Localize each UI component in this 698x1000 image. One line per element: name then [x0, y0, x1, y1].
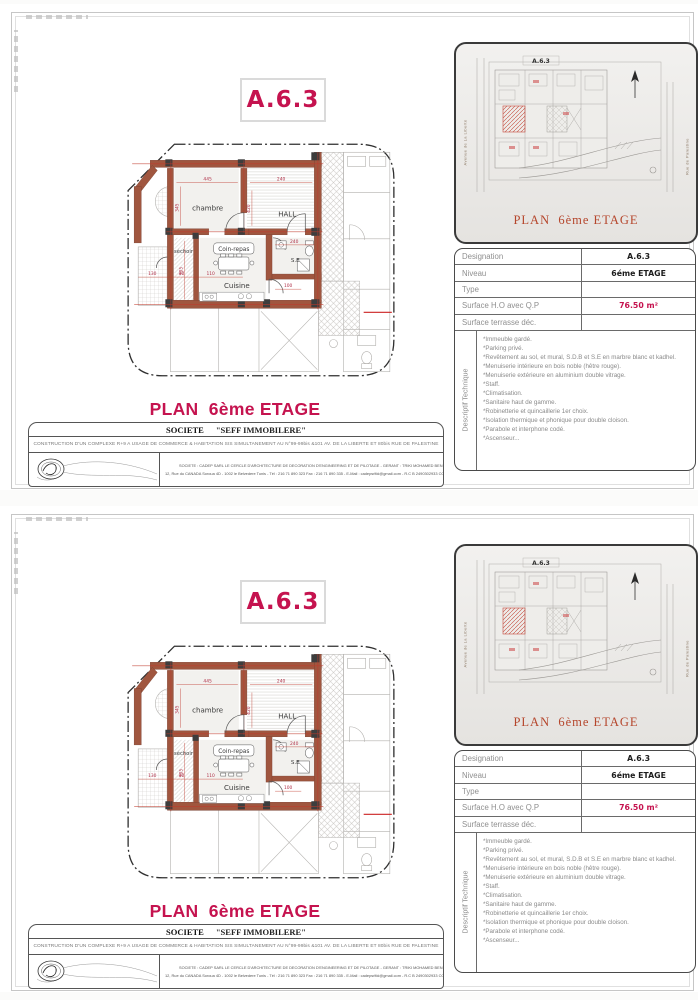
inset-caption: PLAN 6ème ETAGE [456, 715, 696, 730]
table-row: Type [455, 784, 695, 800]
dim-chambre-height: 345 [174, 203, 180, 212]
row-value [582, 817, 695, 832]
border-tick-marks-horizontal [26, 517, 88, 521]
room-label-coin-repas: Coin-repas [218, 247, 249, 253]
project-description: CONSTRUCTION D'UN COMPLEXE R+9 A USAGE D… [29, 939, 443, 955]
dim-hall-height: 420 [246, 706, 252, 715]
border-tick-marks-horizontal [26, 15, 88, 19]
stamp-logo-drawing [29, 955, 159, 988]
row-label: Surface H.O avec Q.P [455, 298, 582, 313]
descriptif-items: *Immeuble gardé. *Parking privé. *Revête… [477, 833, 695, 972]
row-value-surface: 76.50 m² [582, 800, 695, 815]
descriptif-item: *Sanitaire haut de gamme. [483, 398, 692, 407]
building-mass [495, 70, 607, 168]
table-row: Surface terrasse déc. [455, 817, 695, 833]
room-label-chambre: chambre [192, 204, 223, 213]
table-row: Surface H.O avec Q.P 76.50 m² [455, 800, 695, 816]
inset-unit-code: A.6.3 [532, 560, 550, 567]
societe-value: "SEFF IMMOBILERE" [216, 425, 306, 435]
dim-sechoir-c: 110 [206, 773, 215, 779]
descriptif-technique: Descriptif Technique *Immeuble gardé. *P… [455, 331, 695, 470]
descriptif-item: *Robinetterie et quincaillerie 1er choix… [483, 407, 692, 416]
dim-chambre-width: 445 [203, 678, 212, 684]
inset-unit-code: A.6.3 [532, 58, 550, 65]
dim-sechoir-c: 110 [206, 271, 215, 277]
descriptif-item: *Parabole et interphone codé. [483, 425, 692, 434]
descriptif-item: *Immeuble gardé. [483, 335, 692, 344]
toilet [305, 748, 313, 758]
row-value: 6éme ETAGE [582, 767, 695, 782]
row-label: Surface H.O avec Q.P [455, 800, 582, 815]
designation-table: Designation A.6.3 Niveau 6éme ETAGE Type… [454, 750, 696, 973]
descriptif-item: *Immeuble gardé. [483, 837, 692, 846]
unit-code: A.6.3 [247, 87, 320, 113]
highlighted-unit [503, 608, 525, 634]
table-row: Surface terrasse déc. [455, 315, 695, 331]
row-label: Niveau [455, 265, 582, 280]
row-label: Designation [455, 249, 582, 264]
descriptif-item: *Menuiserie intérieure en bois noble (hê… [483, 362, 692, 371]
descriptif-item: *Ascenseur... [483, 434, 692, 443]
cadep-stamp-logo [29, 955, 160, 988]
table-row: Designation A.6.3 [455, 751, 695, 767]
dim-se-width: 240 [290, 741, 299, 747]
descriptif-item: *Menuiserie extérieure en aluminium doub… [483, 371, 692, 380]
shaft-hatch [318, 152, 343, 281]
room-label-coin-repas: Coin-repas [218, 749, 249, 755]
dim-se-b: 100 [284, 283, 293, 289]
street-label-left: Avenue de La Liberté [463, 610, 468, 680]
plan-sheet: A.6.3 [0, 506, 698, 992]
row-label: Surface terrasse déc. [455, 315, 582, 330]
row-value [582, 315, 695, 330]
descriptif-item: *Menuiserie intérieure en bois noble (hê… [483, 864, 692, 873]
site-plan-drawing: A.6.3 [463, 50, 687, 200]
site-plan-card: A.6.3 Avenue de La Liberté Rue de Palest… [454, 42, 698, 244]
room-label-sechoir: séchoir [174, 750, 194, 757]
descriptif-item: *Climatisation. [483, 891, 692, 900]
stair-core-hatch [318, 783, 359, 837]
north-arrow-icon [631, 572, 639, 600]
descriptif-item: *Isolation thermique et phonique pour do… [483, 918, 692, 927]
societe-name-row: SOCIETE "SEFF IMMOBILERE" [29, 423, 443, 437]
table-row: Niveau 6éme ETAGE [455, 265, 695, 281]
room-label-se: S.E [291, 760, 300, 766]
room-label-sechoir: séchoir [174, 248, 194, 255]
plan-sheet: A.6.3 [0, 4, 698, 490]
firm-line-2: 12, Rue du CANADA Soroua 4D - 1002 le Be… [165, 471, 444, 476]
firm-line-1: SOCIETE : CADEP SARL LE CERCLE D'ARCHITE… [165, 965, 444, 970]
room-label-cuisine: Cuisine [224, 281, 250, 290]
inset-caption: PLAN 6ème ETAGE [456, 213, 696, 228]
firm-row: SOCIETE : CADEP SARL LE CERCLE D'ARCHITE… [29, 955, 443, 988]
street-label-left: Avenue de La Liberté [463, 108, 468, 178]
street-label-right: Rue de Palestine [685, 122, 690, 192]
row-label: Niveau [455, 767, 582, 782]
page: A.6.3 [0, 0, 698, 992]
row-label: Surface terrasse déc. [455, 817, 582, 832]
site-plan-drawing: A.6.3 [463, 552, 687, 702]
table-row: Type [455, 282, 695, 298]
building-mass [495, 572, 607, 670]
unit-code-box: A.6.3 [240, 580, 326, 624]
societe-name-row: SOCIETE "SEFF IMMOBILERE" [29, 925, 443, 939]
descriptif-item: *Parabole et interphone codé. [483, 927, 692, 936]
stair-core-hatch [318, 281, 359, 335]
descriptif-item: *Parking privé. [483, 344, 692, 353]
descriptif-side-label-cell: Descriptif Technique [455, 833, 477, 972]
dining-table [219, 759, 249, 772]
firm-row: SOCIETE : CADEP SARL LE CERCLE D'ARCHITE… [29, 453, 443, 486]
row-value [582, 784, 695, 799]
descriptif-item: *Parking privé. [483, 846, 692, 855]
dim-chambre-height: 345 [174, 705, 180, 714]
dim-sechoir-height: 305 [178, 769, 184, 778]
dim-chambre-width: 445 [203, 176, 212, 182]
firm-line-1: SOCIETE : CADEP SARL LE CERCLE D'ARCHITE… [165, 463, 444, 468]
dim-sechoir-height: 305 [178, 267, 184, 276]
floor-plan: 445 240 345 420 130 40 110 305 240 100 c… [110, 630, 414, 900]
project-description: CONSTRUCTION D'UN COMPLEXE R+9 A USAGE D… [29, 437, 443, 453]
highlighted-unit [503, 106, 525, 132]
societe-label: SOCIETE [166, 927, 204, 937]
descriptif-item: *Staff. [483, 380, 692, 389]
firm-info: SOCIETE : CADEP SARL LE CERCLE D'ARCHITE… [160, 453, 444, 486]
north-arrow-icon [631, 70, 639, 98]
dim-hall-width: 240 [277, 678, 286, 684]
site-plan-card: A.6.3 Avenue de La Liberté Rue de Palest… [454, 544, 698, 746]
firm-info: SOCIETE : CADEP SARL LE CERCLE D'ARCHITE… [160, 955, 444, 988]
table-row: Niveau 6éme ETAGE [455, 767, 695, 783]
room-label-cuisine: Cuisine [224, 783, 250, 792]
descriptif-item: *Sanitaire haut de gamme. [483, 900, 692, 909]
row-label: Type [455, 282, 582, 297]
societe-label: SOCIETE [166, 425, 204, 435]
dim-hall-height: 420 [246, 204, 252, 213]
row-value [582, 282, 695, 297]
descriptif-item: *Ascenseur... [483, 936, 692, 945]
descriptif-side-label: Descriptif Technique [462, 369, 469, 432]
stamp-logo-drawing [29, 453, 159, 486]
dim-sechoir-a: 130 [148, 271, 157, 277]
street-label-right: Rue de Palestine [685, 624, 690, 694]
table-row: Designation A.6.3 [455, 249, 695, 265]
unit-code: A.6.3 [247, 589, 320, 615]
descriptif-items: *Immeuble gardé. *Parking privé. *Revête… [477, 331, 695, 470]
firm-line-2: 12, Rue du CANADA Soroua 4D - 1002 le Be… [165, 973, 444, 978]
cadep-stamp-logo [29, 453, 160, 486]
plan-title: PLAN 6ème ETAGE [25, 399, 445, 420]
row-value: A.6.3 [582, 751, 695, 766]
descriptif-item: *Menuiserie extérieure en aluminium doub… [483, 873, 692, 882]
row-value: A.6.3 [582, 249, 695, 264]
descriptif-item: *Isolation thermique et phonique pour do… [483, 416, 692, 425]
room-label-chambre: chambre [192, 706, 223, 715]
room-label-hall: HALL [278, 712, 296, 721]
room-label-se: S.E [291, 258, 300, 264]
descriptif-item: *Climatisation. [483, 389, 692, 398]
descriptif-side-label-cell: Descriptif Technique [455, 331, 477, 470]
plan-title: PLAN 6ème ETAGE [25, 901, 445, 922]
floor-plan-drawing: 445 240 345 420 130 40 110 305 240 100 c… [110, 128, 414, 398]
dim-se-width: 240 [290, 239, 299, 245]
descriptif-item: *Robinetterie et quincaillerie 1er choix… [483, 909, 692, 918]
societe-block: SOCIETE "SEFF IMMOBILERE" CONSTRUCTION D… [28, 422, 444, 487]
floor-plan: 445 240 345 420 130 40 110 305 240 100 c… [110, 128, 414, 398]
descriptif-item: *Revêtement au sol, et mural, S.D.B et S… [483, 855, 692, 864]
unit-code-box: A.6.3 [240, 78, 326, 122]
floor-plan-drawing: 445 240 345 420 130 40 110 305 240 100 c… [110, 630, 414, 900]
row-label: Type [455, 784, 582, 799]
descriptif-side-label: Descriptif Technique [462, 871, 469, 934]
row-value: 6éme ETAGE [582, 265, 695, 280]
dim-sechoir-a: 130 [148, 773, 157, 779]
toilet [305, 246, 313, 256]
designation-table: Designation A.6.3 Niveau 6éme ETAGE Type… [454, 248, 696, 471]
table-row: Surface H.O avec Q.P 76.50 m² [455, 298, 695, 314]
dim-se-b: 100 [284, 785, 293, 791]
dim-hall-width: 240 [277, 176, 286, 182]
societe-block: SOCIETE "SEFF IMMOBILERE" CONSTRUCTION D… [28, 924, 444, 989]
descriptif-item: *Revêtement au sol, et mural, S.D.B et S… [483, 353, 692, 362]
row-label: Designation [455, 751, 582, 766]
room-label-hall: HALL [278, 210, 296, 219]
border-tick-marks-vertical [14, 532, 18, 594]
dining-table [219, 257, 249, 270]
descriptif-technique: Descriptif Technique *Immeuble gardé. *P… [455, 833, 695, 972]
border-tick-marks-vertical [14, 30, 18, 92]
descriptif-item: *Staff. [483, 882, 692, 891]
row-value-surface: 76.50 m² [582, 298, 695, 313]
shaft-hatch [318, 654, 343, 783]
societe-value: "SEFF IMMOBILERE" [216, 927, 306, 937]
